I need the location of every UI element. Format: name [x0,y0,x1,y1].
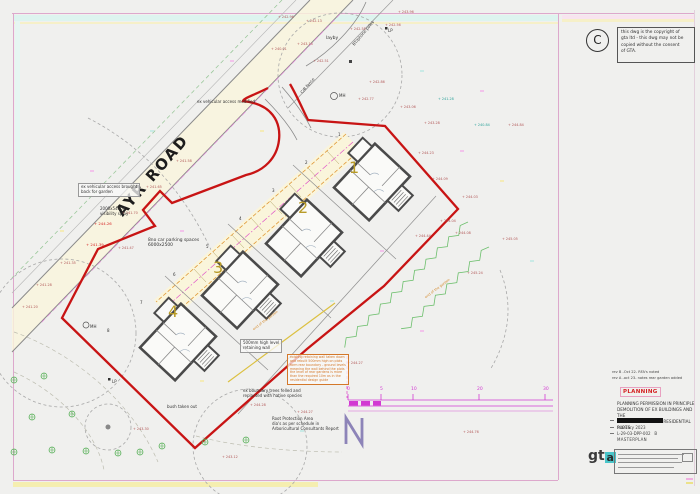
drawing-number: L-29-03-DPP-002 B [617,431,657,436]
practice-address-box [614,449,697,474]
copyright-symbol: C [586,29,609,52]
house-plot-4 [130,295,227,391]
ayr-road-corridor [12,0,393,352]
copyright-note: this dwg is the copyright ofgta ltd - th… [617,27,695,63]
revision-notes: rev B -Oct 22- RFA's notedrev A -oct 23-… [612,370,682,382]
gta-logo: gta [588,449,616,463]
north-arrow [346,418,362,444]
drawing-title: MASTERPLAN [617,437,647,442]
drawing-date: february 2023 [617,425,646,430]
hedge-lines [345,222,489,348]
title-block-dash [610,433,614,434]
title-block-dash [610,427,614,428]
scale-bar [348,394,553,411]
drawing-sheet: AYR ROAD + 242.96+ 242.13+ 242.55+ 242.5… [0,0,700,494]
redacted-client-name [617,418,663,423]
status-stamp: PLANNING [620,387,661,397]
tree-symbol [106,425,111,430]
title-block-dash [610,420,614,421]
